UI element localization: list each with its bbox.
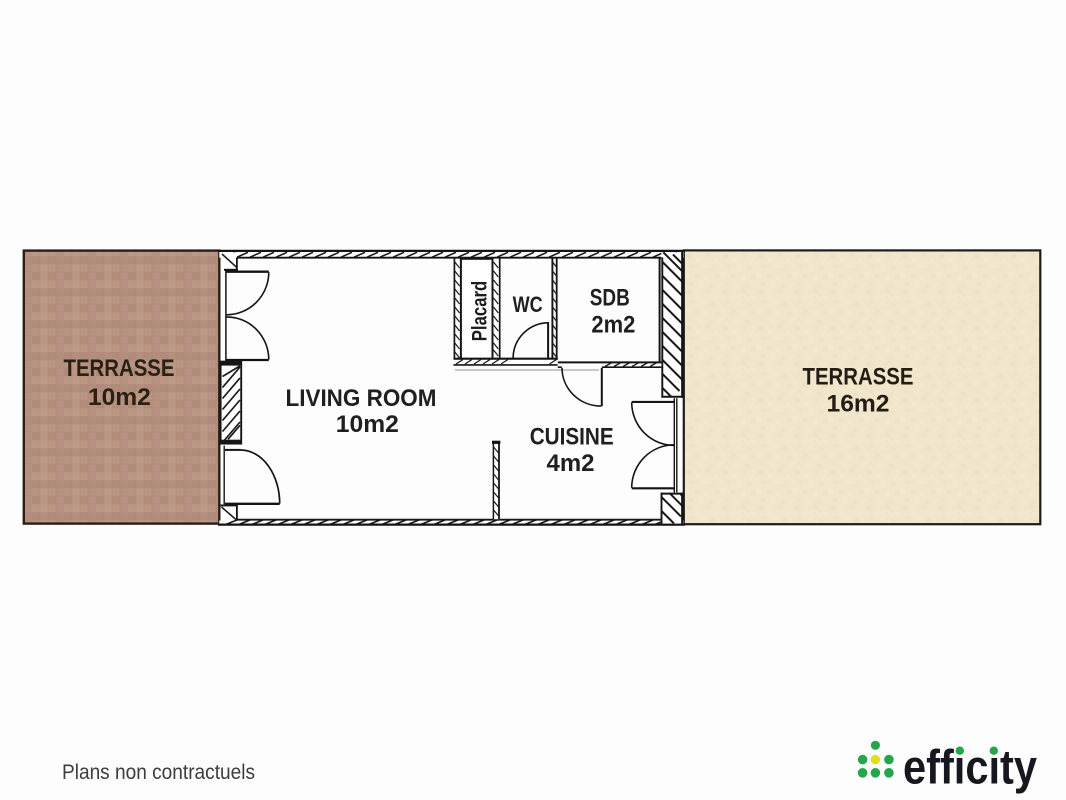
- svg-text:TERRASSE: TERRASSE: [803, 364, 914, 391]
- svg-text:effıcıty: effıcıty: [903, 742, 1037, 795]
- svg-text:4m2: 4m2: [547, 450, 595, 477]
- svg-text:CUISINE: CUISINE: [530, 424, 614, 451]
- svg-text:SDB: SDB: [590, 285, 630, 312]
- svg-text:TERRASSE: TERRASSE: [64, 355, 175, 382]
- svg-text:2m2: 2m2: [591, 311, 635, 338]
- svg-text:WC: WC: [513, 292, 543, 317]
- svg-text:Plans non contractuels: Plans non contractuels: [62, 760, 255, 784]
- svg-text:Placard: Placard: [469, 281, 492, 342]
- svg-text:10m2: 10m2: [336, 411, 399, 438]
- svg-text:10m2: 10m2: [88, 384, 151, 411]
- svg-text:16m2: 16m2: [827, 391, 890, 418]
- svg-text:LIVING ROOM: LIVING ROOM: [286, 385, 437, 412]
